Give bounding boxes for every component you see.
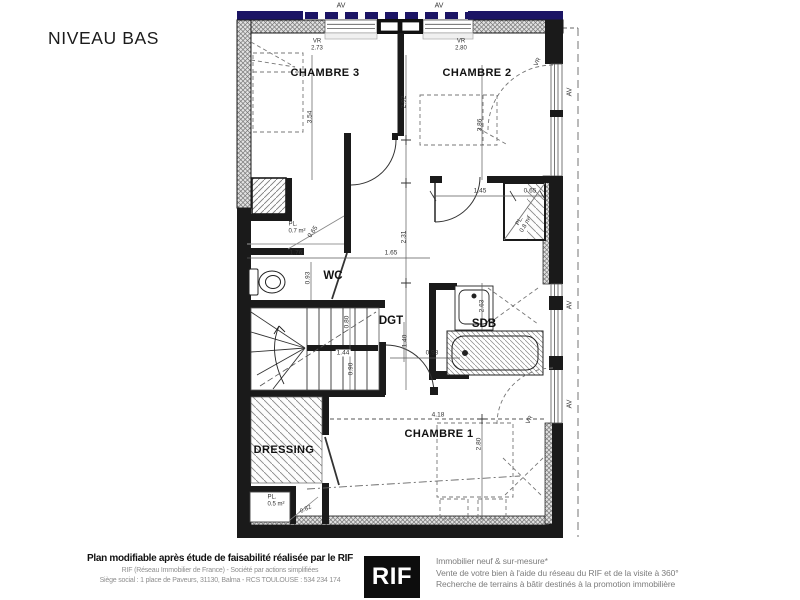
dim-354: 3.54 bbox=[307, 111, 314, 124]
footer-company-info: RIF (Réseau Immobilier de France) - Soci… bbox=[55, 566, 385, 585]
closet-label-pl05: PL. 0.5 m² bbox=[267, 494, 284, 507]
dim-065-h: 0.65 bbox=[524, 188, 537, 195]
door-dressing bbox=[325, 437, 339, 485]
page-title: NIVEAU BAS bbox=[48, 28, 159, 49]
room-label-chambre2: CHAMBRE 2 bbox=[443, 67, 512, 79]
dim-165: 1.65 bbox=[385, 250, 398, 257]
footer-service-line1: Immobilier neuf & sur-mesure* bbox=[436, 556, 726, 568]
pl-text: PL. bbox=[288, 221, 297, 228]
dim-231: 2.31 bbox=[401, 231, 408, 244]
footer-disclaimer: Plan modifiable après étude de faisabili… bbox=[55, 553, 385, 564]
rif-logo-text: RIF bbox=[372, 563, 412, 591]
pl-area: 0.7 m² bbox=[288, 228, 305, 235]
door-chambre3 bbox=[351, 140, 396, 185]
av-label: AV bbox=[567, 301, 574, 310]
dim-090: 0.90 bbox=[348, 363, 355, 376]
footer-company-line1: RIF (Réseau Immobilier de France) - Soci… bbox=[55, 566, 385, 576]
footer-service-line2: Vente de votre bien à l'aide du réseau d… bbox=[436, 568, 726, 580]
dim-093b: 0.93 bbox=[426, 350, 439, 357]
dim-280: 2.80 bbox=[476, 438, 483, 451]
vr-value: 2.80 bbox=[455, 45, 467, 52]
bathtub bbox=[447, 331, 543, 375]
dim-145: 1.45 bbox=[474, 188, 487, 195]
vr-label-chambre3: VR 2.73 bbox=[311, 38, 323, 51]
room-label-sdb: SDB bbox=[472, 318, 496, 330]
av-label: AV bbox=[337, 3, 346, 10]
footer-service-line3: Recherche de terrains à bâtir destinés à… bbox=[436, 579, 726, 591]
dim-418: 4.18 bbox=[431, 412, 446, 419]
av-label: AV bbox=[435, 3, 444, 10]
av-label: AV bbox=[567, 400, 574, 409]
toilet bbox=[249, 269, 285, 295]
vr-text: VR bbox=[313, 38, 321, 45]
dim-292: 2.92 bbox=[401, 96, 408, 109]
dim-080: 0.80 bbox=[344, 316, 351, 329]
dim-093: 0.93 bbox=[305, 272, 312, 285]
dim-140: 1.40 bbox=[402, 335, 409, 348]
door-chambre2 bbox=[435, 177, 480, 222]
staircase bbox=[251, 308, 379, 390]
pl-area: 0.5 m² bbox=[267, 501, 284, 508]
closet-label-pl07: PL. 0.7 m² bbox=[288, 221, 305, 234]
vr-text: VR bbox=[457, 38, 465, 45]
dim-263: 2.63 bbox=[479, 300, 486, 313]
footer-services-block: Immobilier neuf & sur-mesure* Vente de v… bbox=[436, 556, 726, 591]
floor-plan-page: NIVEAU BAS CHAMBRE 3 CHAMBRE 2 WC DGT SD… bbox=[0, 0, 800, 600]
bed-chambre2 bbox=[420, 95, 497, 145]
center-window-unit bbox=[377, 19, 423, 34]
rif-logo: RIF bbox=[364, 556, 420, 598]
vr-label-chambre2: VR 2.80 bbox=[455, 38, 467, 51]
dressing-low-ceiling-hatch bbox=[251, 397, 322, 483]
bed-chambre3 bbox=[253, 53, 303, 132]
pl-text: PL. bbox=[267, 494, 276, 501]
dim-386: 3.86 bbox=[477, 119, 484, 132]
footer-left-block: Plan modifiable après étude de faisabili… bbox=[55, 553, 385, 585]
vr-value: 2.73 bbox=[311, 45, 323, 52]
dim-176: 1.76 bbox=[290, 250, 303, 257]
room-label-chambre1: CHAMBRE 1 bbox=[405, 428, 474, 440]
room-label-dressing: DRESSING bbox=[254, 444, 315, 456]
room-label-dgt: DGT bbox=[379, 315, 403, 327]
room-label-wc: WC bbox=[323, 270, 342, 282]
floor-plan-drawing bbox=[0, 0, 800, 600]
dim-144: 1.44 bbox=[336, 350, 351, 357]
footer-company-line2: Siège social : 1 place de Paveurs, 31130… bbox=[55, 576, 385, 586]
room-label-chambre3: CHAMBRE 3 bbox=[291, 67, 360, 79]
technical-duct bbox=[252, 178, 286, 214]
av-label: AV bbox=[567, 88, 574, 97]
